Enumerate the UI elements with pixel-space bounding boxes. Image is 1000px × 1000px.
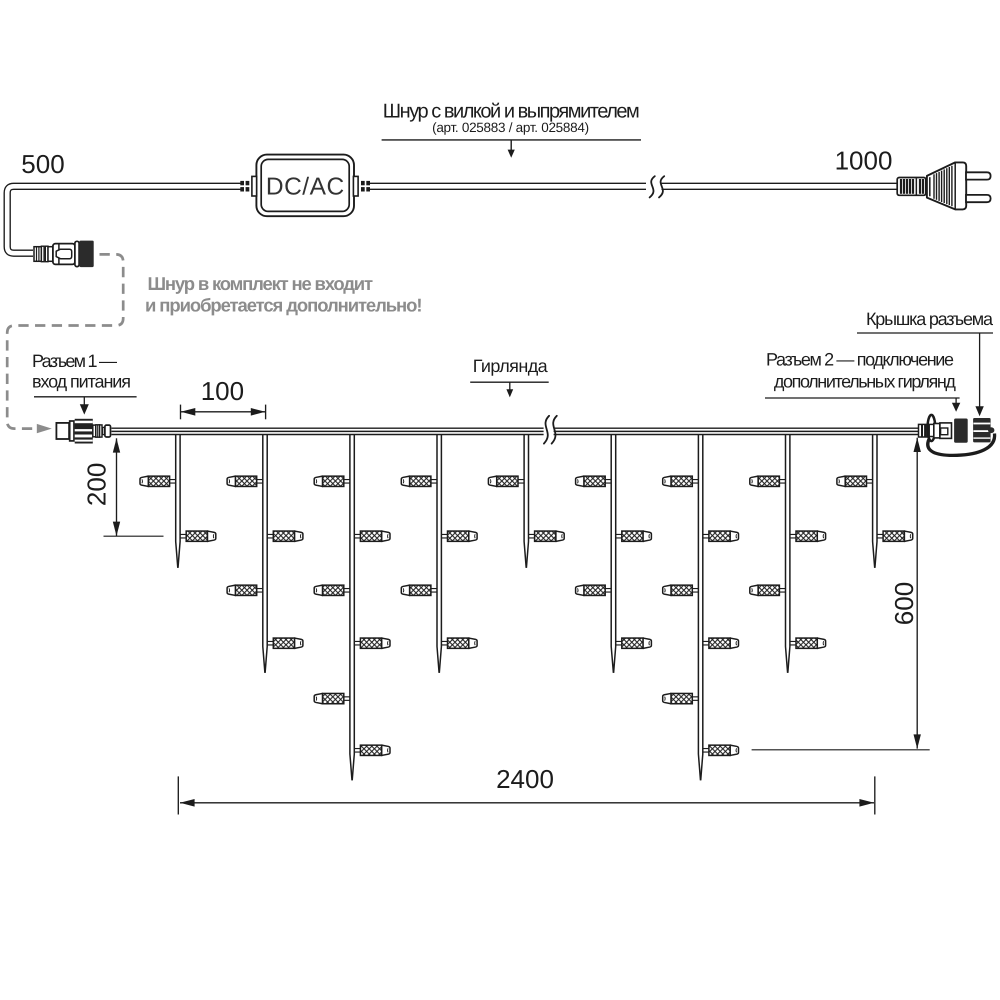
svg-text:и приобретается дополнительно!: и приобретается дополнительно!	[145, 294, 423, 315]
svg-text:Разъем 2 — подключение: Разъем 2 — подключение	[766, 349, 954, 369]
svg-text:500: 500	[21, 149, 64, 179]
svg-text:дополнительных гирлянд: дополнительных гирлянд	[774, 371, 956, 391]
svg-text:Крышка разъема: Крышка разъема	[866, 309, 994, 329]
svg-text:100: 100	[201, 376, 244, 406]
svg-text:Разъем 1 —: Разъем 1 —	[32, 351, 117, 371]
svg-text:Шнур в комплект не входит: Шнур в комплект не входит	[148, 273, 374, 294]
svg-text:200: 200	[82, 463, 112, 506]
svg-text:вход питания: вход питания	[32, 372, 131, 392]
svg-text:Гирлянда: Гирлянда	[473, 356, 549, 376]
svg-text:(арт. 025883 / арт. 025884): (арт. 025883 / арт. 025884)	[432, 120, 589, 135]
svg-text:DC/AC: DC/AC	[266, 173, 345, 200]
svg-text:600: 600	[889, 582, 919, 625]
svg-text:2400: 2400	[496, 764, 554, 794]
svg-text:1000: 1000	[835, 145, 893, 175]
